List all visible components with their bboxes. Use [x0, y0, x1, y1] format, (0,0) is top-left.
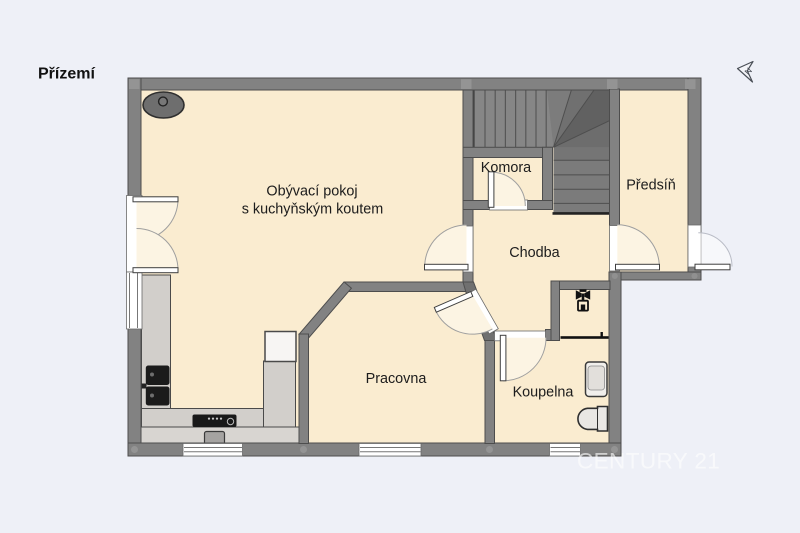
- svg-text:Chodba: Chodba: [509, 245, 559, 261]
- svg-text:Komora: Komora: [481, 160, 531, 176]
- svg-text:Pracovna: Pracovna: [366, 371, 427, 387]
- svg-text:Koupelna: Koupelna: [513, 385, 574, 401]
- svg-text:CENTURY 21: CENTURY 21: [577, 449, 720, 474]
- svg-text:s kuchyňským koutem: s kuchyňským koutem: [242, 202, 384, 218]
- svg-text:Předsíň: Předsíň: [626, 177, 676, 193]
- svg-text:Obývací pokoj: Obývací pokoj: [266, 184, 357, 200]
- svg-text:Přízemí: Přízemí: [38, 65, 95, 82]
